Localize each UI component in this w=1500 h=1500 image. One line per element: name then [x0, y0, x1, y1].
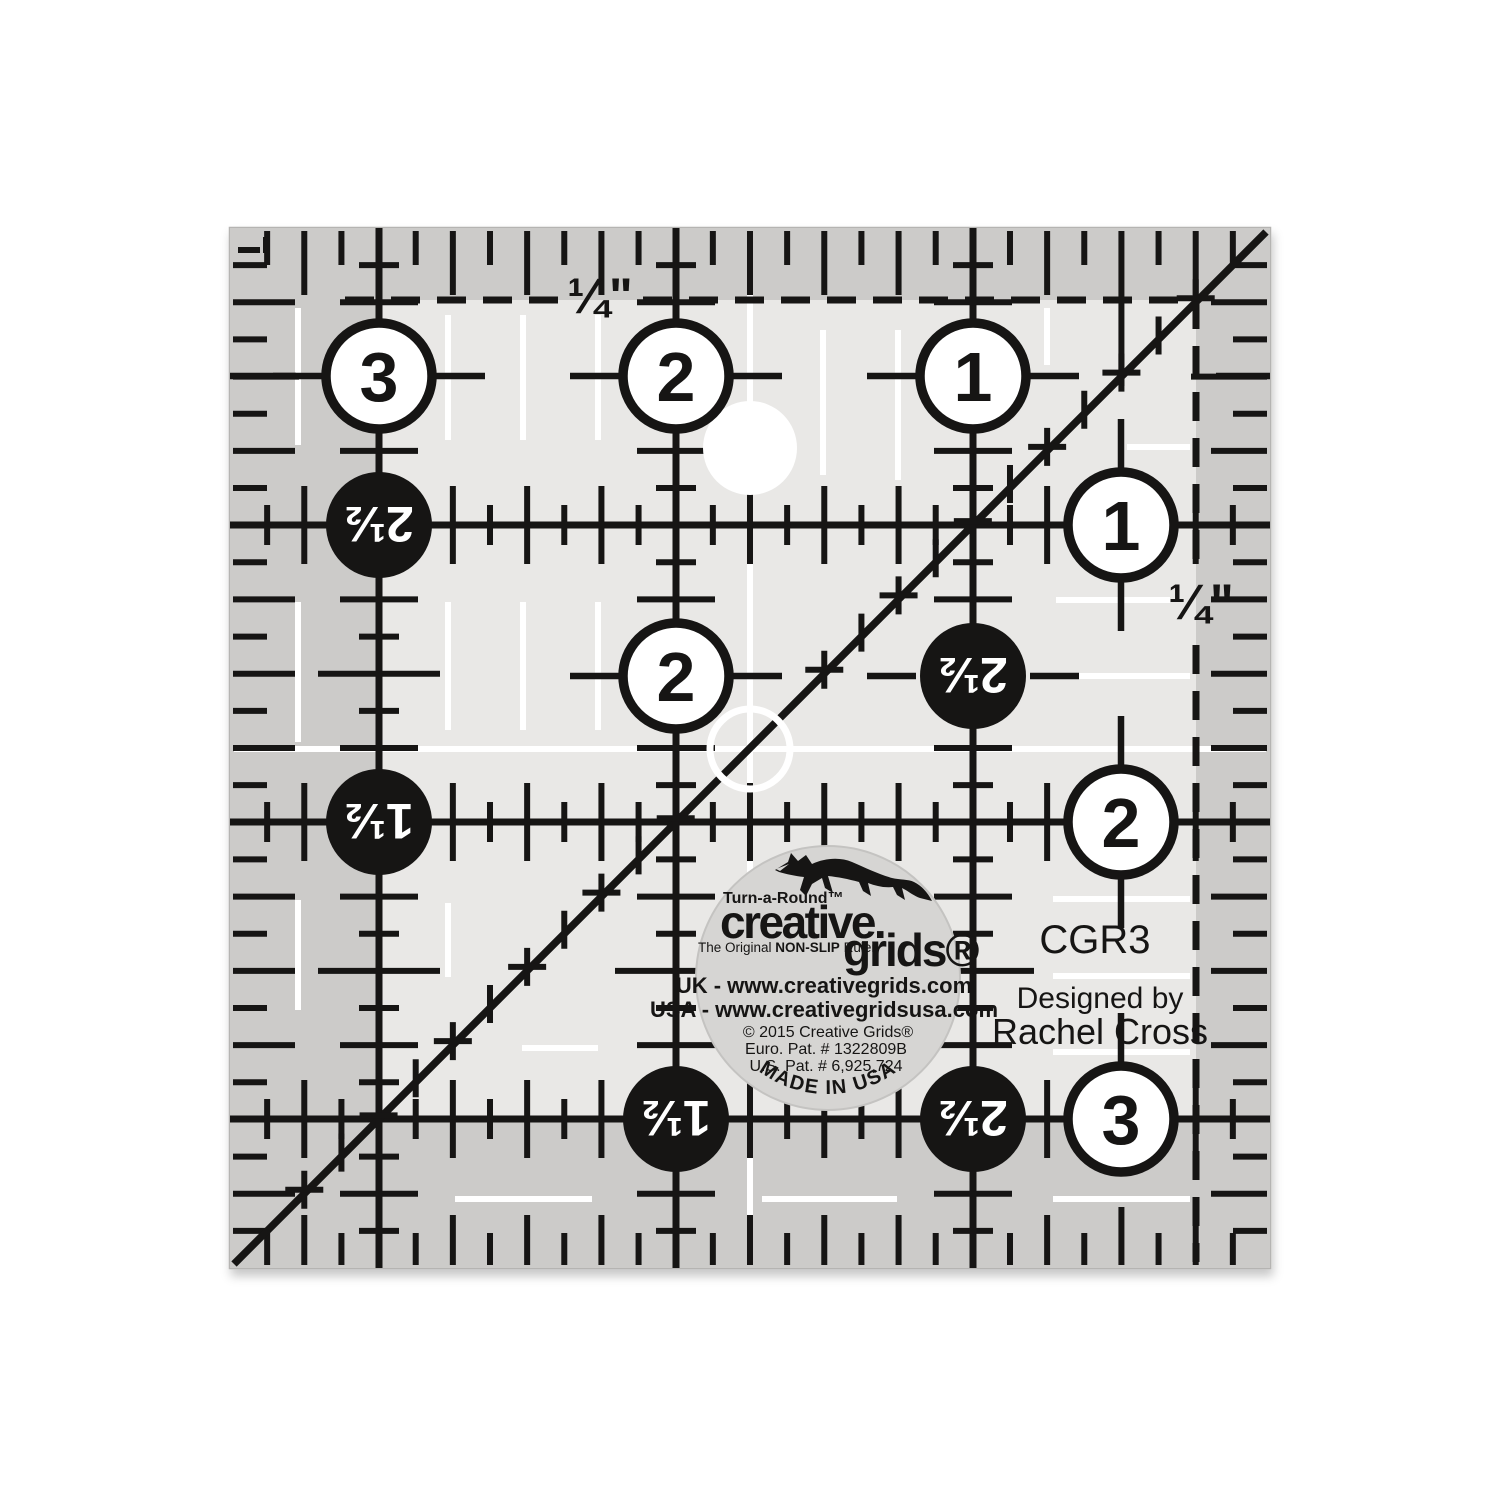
quarter-inch-label-top: ¼" — [567, 268, 632, 324]
model-number: CGR3 — [1039, 918, 1150, 962]
measure-circle-3: 3 — [1068, 1066, 1174, 1172]
measure-circle-1: 1 — [920, 323, 1026, 429]
circle-number: 2 — [1102, 784, 1141, 862]
measure-circle-1half: 1½ — [623, 1066, 729, 1172]
designer-name: Rachel Cross — [992, 1011, 1208, 1052]
measure-circle-1half: 1½ — [326, 769, 432, 875]
circle-number-rotated: 1½ — [344, 793, 414, 849]
circle-number: 2 — [657, 638, 696, 716]
circle-number-rotated: 1½ — [641, 1090, 711, 1146]
sticker-url-uk: UK - www.creativegrids.com — [676, 973, 972, 998]
measure-circle-2half: 2½ — [920, 623, 1026, 729]
quilting-ruler-photo: 3212½122½1½21½2½3 ¼" ¼" CGR3 Designed by… — [0, 0, 1500, 1500]
sticker-euro-patent: Euro. Pat. # 1322809B — [745, 1041, 907, 1058]
circle-number: 3 — [360, 338, 399, 416]
circle-number-rotated: 2½ — [938, 647, 1008, 703]
quarter-inch-label-right: ¼" — [1168, 574, 1233, 630]
product-photo-stage: 3212½122½1½21½2½3 ¼" ¼" CGR3 Designed by… — [0, 0, 1500, 1500]
brand-wordmark-bottom: grids® — [843, 924, 979, 976]
measure-circle-2: 2 — [1068, 769, 1174, 875]
measure-circle-3: 3 — [326, 323, 432, 429]
circle-number: 1 — [954, 338, 993, 416]
circle-number-rotated: 2½ — [938, 1090, 1008, 1146]
measure-circle-2half: 2½ — [920, 1066, 1026, 1172]
measure-circle-2half: 2½ — [326, 472, 432, 578]
circle-number: 1 — [1102, 487, 1141, 565]
sticker-url-usa: USA - www.creativegridsusa.com — [650, 997, 998, 1022]
circle-number-rotated: 2½ — [344, 496, 414, 552]
measure-circle-1: 1 — [1068, 472, 1174, 578]
measure-circle-2: 2 — [623, 323, 729, 429]
measure-circle-2: 2 — [623, 623, 729, 729]
sticker-copyright: © 2015 Creative Grids® — [743, 1024, 914, 1041]
circle-number: 3 — [1102, 1081, 1141, 1159]
circle-number: 2 — [657, 338, 696, 416]
